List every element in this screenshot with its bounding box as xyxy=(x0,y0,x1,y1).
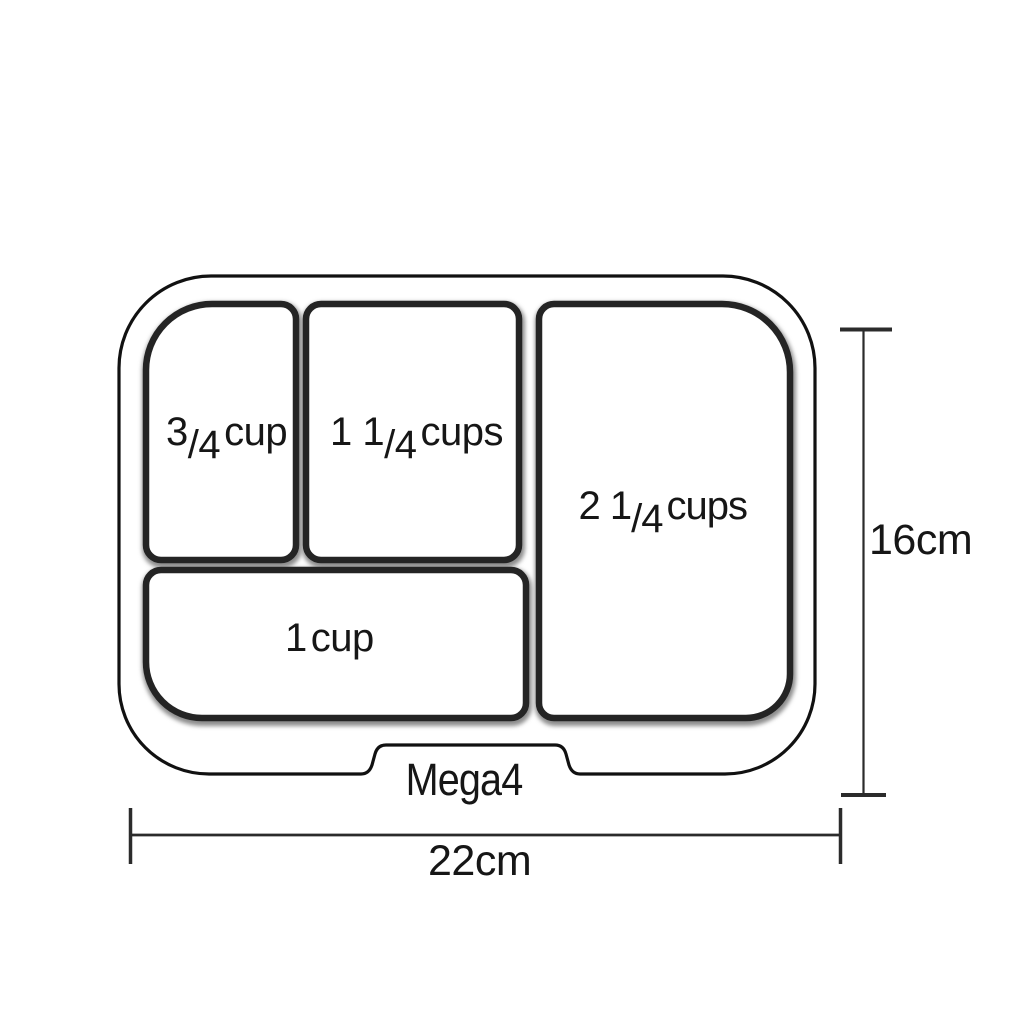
svg-text:16cm: 16cm xyxy=(869,516,972,564)
svg-text:22cm: 22cm xyxy=(428,837,531,885)
svg-text:Mega4: Mega4 xyxy=(406,755,523,805)
svg-text:1cup: 1cup xyxy=(285,616,374,660)
